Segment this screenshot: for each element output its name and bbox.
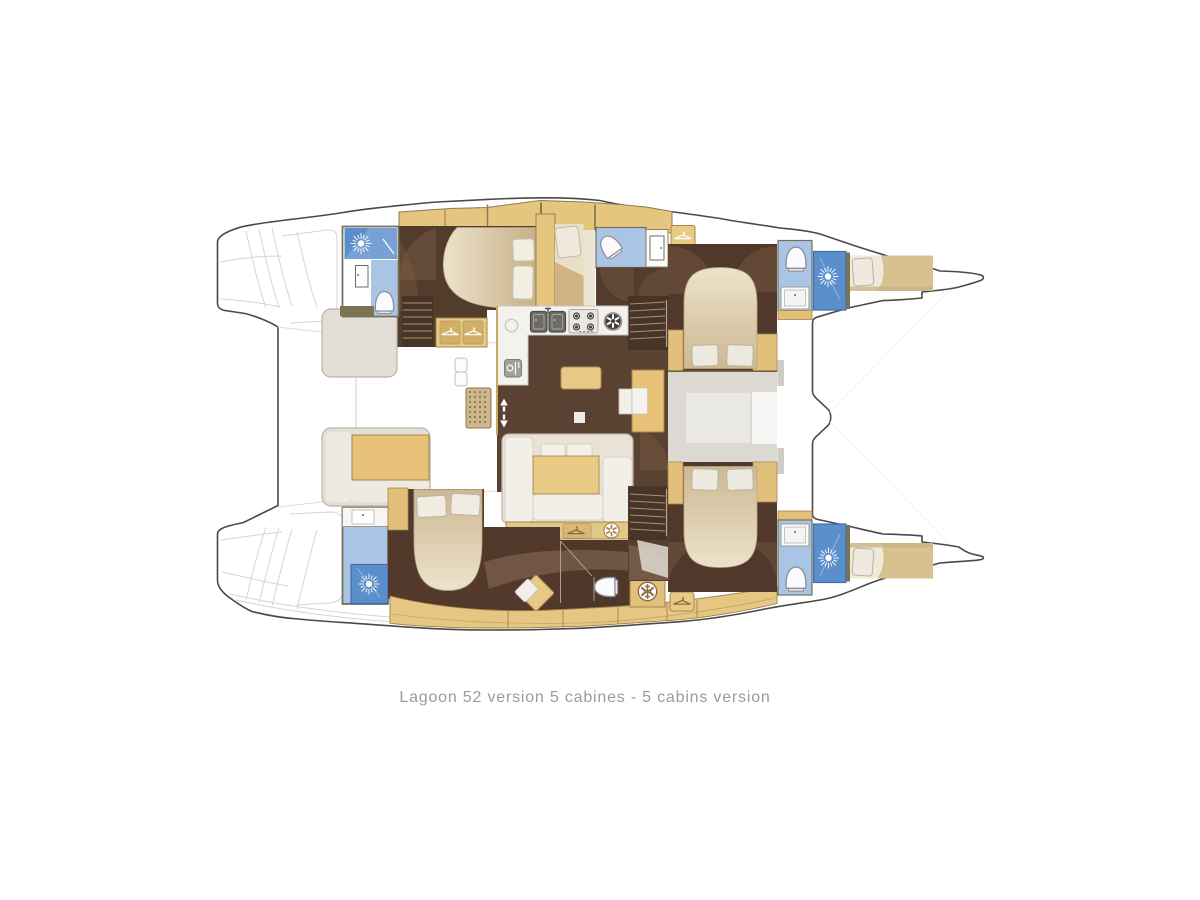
svg-text:Lagoon 52 version 5 cabines -: Lagoon 52 version 5 cabines - 5 cabins v… [399, 689, 770, 706]
